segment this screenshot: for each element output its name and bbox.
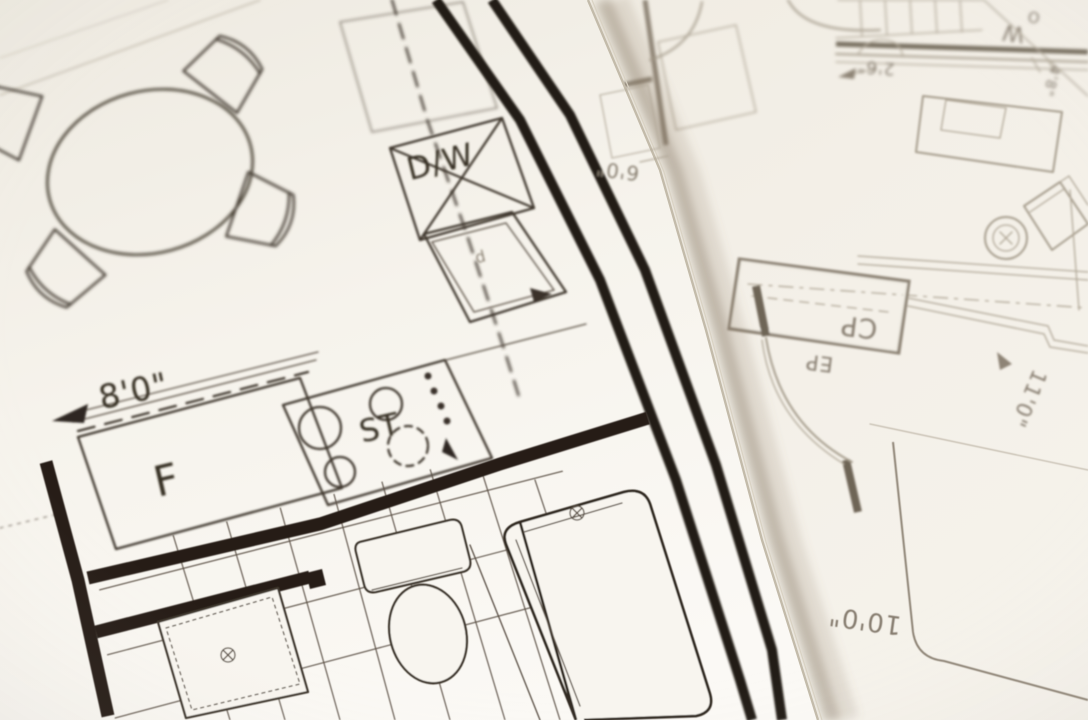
blueprint-photo: 2'6" W O 4'8": [0, 0, 1088, 720]
blueprint-scene: 2'6" W O 4'8": [0, 0, 1088, 720]
vignette-overlay: [0, 0, 1088, 720]
